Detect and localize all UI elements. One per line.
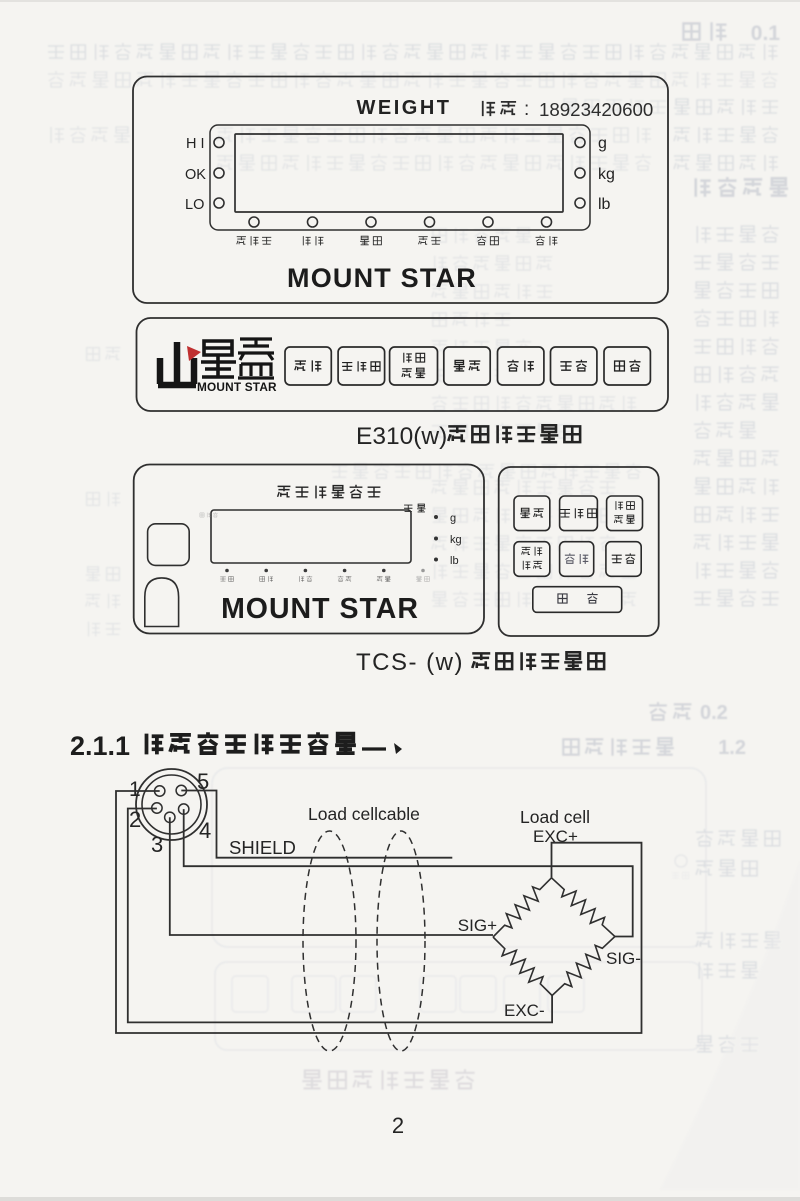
svg-text:kg: kg xyxy=(450,534,462,546)
svg-text:g: g xyxy=(450,513,456,525)
svg-text:0.2: 0.2 xyxy=(700,702,728,724)
svg-text:2.1.1: 2.1.1 xyxy=(70,731,130,761)
svg-text:3: 3 xyxy=(151,832,163,857)
svg-text:SIG+: SIG+ xyxy=(458,916,497,935)
svg-text:Load cellcable: Load cellcable xyxy=(308,804,420,824)
svg-text:MOUNT STAR: MOUNT STAR xyxy=(221,593,419,625)
svg-text::: : xyxy=(524,99,529,120)
svg-text:1.2: 1.2 xyxy=(718,737,746,759)
svg-text:WEIGHT: WEIGHT xyxy=(357,97,452,119)
svg-text:EXC-: EXC- xyxy=(504,1001,545,1020)
svg-text:2: 2 xyxy=(392,1113,404,1138)
svg-text:E310(w): E310(w) xyxy=(356,423,447,450)
svg-text:MOUNT STAR: MOUNT STAR xyxy=(287,263,477,293)
svg-text:Load cell: Load cell xyxy=(520,807,590,827)
svg-text:lb: lb xyxy=(598,196,611,213)
svg-text:g: g xyxy=(598,135,607,152)
svg-text:EXC+: EXC+ xyxy=(533,827,578,846)
svg-text:0.1: 0.1 xyxy=(751,22,781,45)
svg-text:1: 1 xyxy=(129,778,141,801)
svg-text:MOUNT STAR: MOUNT STAR xyxy=(197,380,277,394)
svg-text:SHIELD: SHIELD xyxy=(229,837,296,858)
svg-text:18923420600: 18923420600 xyxy=(539,99,653,120)
svg-text:LO: LO xyxy=(185,197,204,213)
svg-text:TCS- (w): TCS- (w) xyxy=(356,649,464,676)
svg-text:H I: H I xyxy=(186,136,205,152)
svg-text:OK: OK xyxy=(185,167,206,183)
svg-text:2: 2 xyxy=(129,807,141,832)
svg-text:4: 4 xyxy=(199,818,211,843)
svg-text:lb: lb xyxy=(450,555,459,567)
svg-text:kg: kg xyxy=(598,166,615,183)
svg-text:SIG-: SIG- xyxy=(606,949,641,968)
